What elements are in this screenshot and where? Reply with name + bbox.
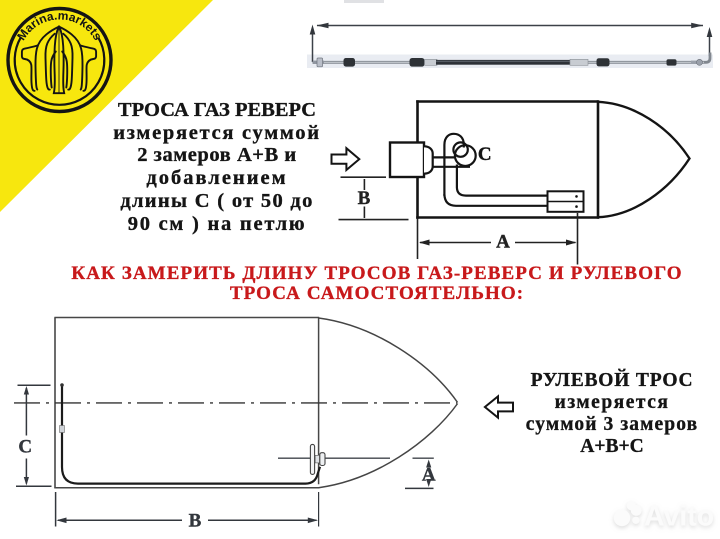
- svg-text:С: С: [18, 437, 32, 458]
- svg-text:А: А: [422, 465, 436, 486]
- svg-text:В: В: [189, 511, 202, 532]
- svg-text:А: А: [496, 232, 510, 253]
- svg-text:Avito: Avito: [644, 501, 714, 533]
- svg-text:С: С: [478, 144, 492, 165]
